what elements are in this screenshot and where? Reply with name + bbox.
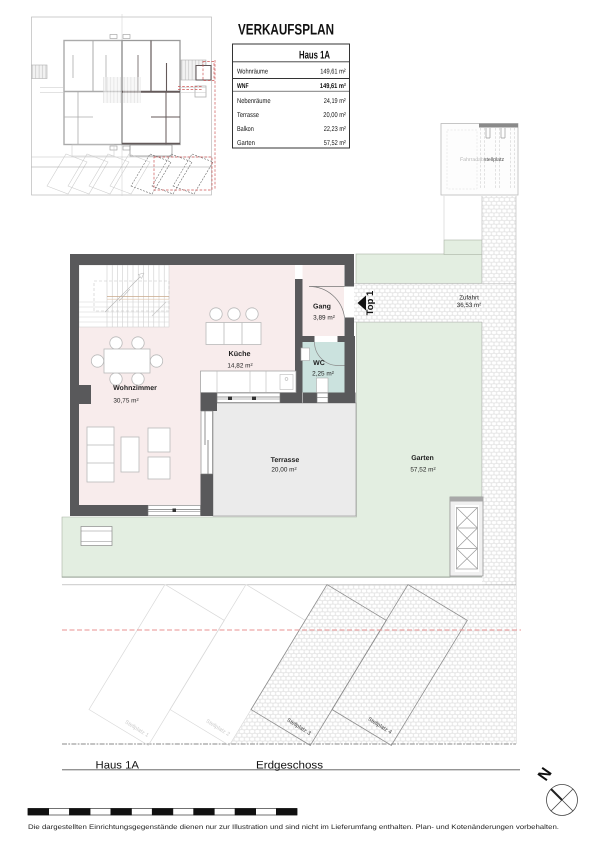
- svg-text:20,00 m²: 20,00 m²: [323, 112, 346, 119]
- svg-text:14,82 m²: 14,82 m²: [227, 363, 252, 370]
- svg-text:3,89 m²: 3,89 m²: [313, 315, 335, 322]
- svg-text:Fahrradabstellplatz: Fahrradabstellplatz: [460, 157, 505, 163]
- svg-text:Balkon: Balkon: [237, 125, 254, 133]
- svg-text:Erdgeschoss: Erdgeschoss: [256, 760, 324, 772]
- svg-text:Gang: Gang: [313, 304, 331, 311]
- svg-text:20,00 m²: 20,00 m²: [271, 467, 296, 474]
- svg-text:57,52 m²: 57,52 m²: [324, 140, 347, 147]
- svg-text:Nebenräume: Nebenräume: [237, 97, 271, 105]
- svg-text:22,23 m²: 22,23 m²: [324, 126, 347, 133]
- svg-text:VERKAUFSPLAN: VERKAUFSPLAN: [238, 22, 334, 39]
- svg-text:Wohnzimmer: Wohnzimmer: [113, 384, 157, 392]
- svg-text:Terrasse: Terrasse: [271, 457, 300, 464]
- svg-text:Die dargestellten Einrichtungs: Die dargestellten Einrichtungsgegenständ…: [28, 824, 559, 831]
- svg-text:Küche: Küche: [229, 349, 251, 358]
- svg-text:Zufahrt: Zufahrt: [459, 295, 479, 302]
- svg-text:Garten: Garten: [237, 140, 255, 147]
- svg-text:149,61 m²: 149,61 m²: [320, 69, 346, 76]
- svg-text:WC: WC: [313, 360, 325, 367]
- svg-text:Haus 1A: Haus 1A: [299, 50, 330, 62]
- svg-text:24,19 m²: 24,19 m²: [324, 98, 347, 105]
- svg-text:WNF: WNF: [237, 83, 249, 90]
- svg-text:57,52 m²: 57,52 m²: [410, 467, 435, 474]
- svg-text:149,61 m²: 149,61 m²: [320, 83, 347, 90]
- svg-text:2,25 m²: 2,25 m²: [312, 371, 334, 378]
- svg-text:Haus 1A: Haus 1A: [96, 760, 140, 772]
- svg-text:30,75 m²: 30,75 m²: [113, 398, 138, 405]
- svg-text:Garten: Garten: [411, 455, 434, 462]
- svg-text:Terrasse: Terrasse: [237, 112, 259, 119]
- svg-text:Wohnräume: Wohnräume: [237, 68, 268, 76]
- svg-text:Top 1: Top 1: [365, 290, 376, 315]
- svg-text:36,53 m²: 36,53 m²: [457, 302, 481, 309]
